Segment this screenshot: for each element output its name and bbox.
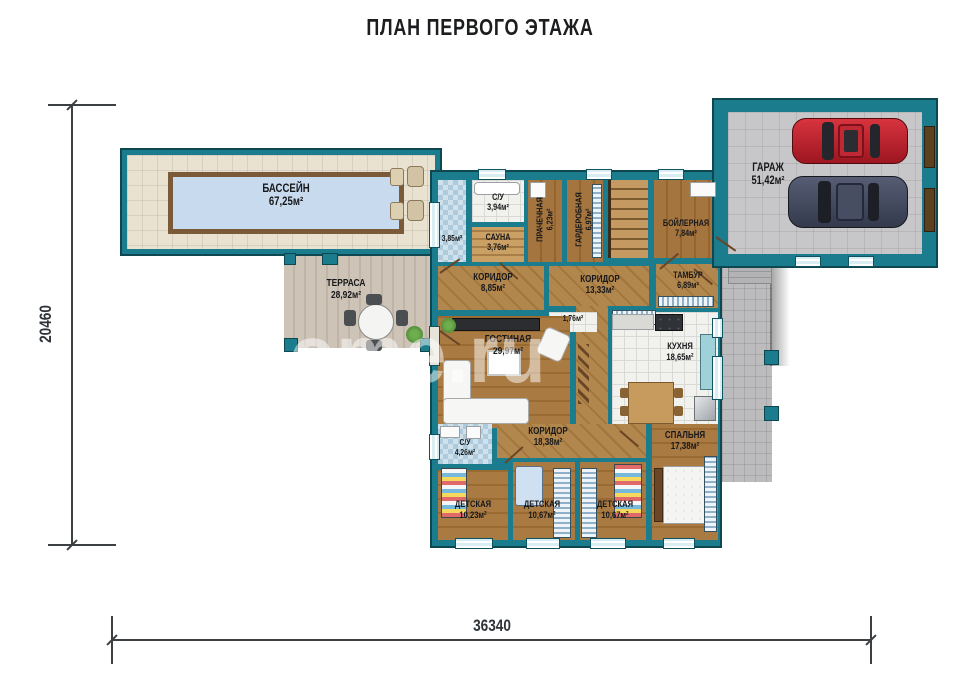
page-title: ПЛАН ПЕРВОГО ЭТАЖА (106, 14, 855, 41)
lounger (407, 166, 424, 187)
room-label-kids3: ДЕТСКАЯ10,67м² (590, 500, 640, 521)
staircase (608, 180, 648, 258)
room-label-kids2: ДЕТСКАЯ10,67м² (516, 500, 567, 521)
garage-door (924, 188, 935, 232)
room-label-terrace: ТЕРРАСА28,92м² (309, 278, 383, 302)
window (663, 538, 695, 549)
shoe-bench (658, 296, 714, 307)
window (526, 538, 560, 549)
bedroom-wardrobe (704, 456, 717, 532)
room-label-wc-top: С/У3,94м² (474, 192, 522, 212)
dimension-line-horizontal (112, 639, 872, 641)
room-label-laundry: ПРАЧЕЧНАЯ6,23м² (535, 186, 554, 254)
floor-plan-canvas: ПЛАН ПЕРВОГО ЭТАЖА БАССЕЙН67,25м² (0, 0, 960, 697)
room-label-wardrobe: ГАРДЕРОБНАЯ6,97м² (574, 186, 593, 254)
watermark: northome.ru (92, 308, 736, 402)
dimension-label-width: 36340 (444, 616, 540, 636)
room-label-kids1: ДЕТСКАЯ10,23м² (447, 500, 500, 521)
dimension-label-height: 20460 (36, 298, 56, 349)
sink (440, 426, 460, 438)
pillar (764, 350, 779, 365)
room-label-garage: ГАРАЖ51,42м² (736, 162, 800, 188)
stair-railing (608, 180, 611, 258)
lounger (390, 168, 404, 186)
chair (674, 406, 683, 416)
room-label-corridor2: КОРИДОР13,33м² (562, 274, 639, 296)
window (455, 538, 493, 549)
window (586, 169, 612, 180)
entry-steps (728, 266, 772, 284)
window (590, 538, 626, 549)
room-label-pool: БАССЕЙН67,25м² (242, 182, 330, 209)
window (848, 256, 874, 267)
car-red-rear-glass (870, 124, 880, 158)
window (478, 169, 506, 180)
room-label-tambour: ТАМБУР6,89м² (664, 270, 712, 290)
car-red-sunroof (844, 130, 858, 152)
window (795, 256, 821, 267)
chair (620, 406, 629, 416)
room-label-corridor1: КОРИДОР8,85м² (457, 272, 529, 294)
terrace-post (322, 253, 338, 265)
room-label-bedroom: СПАЛЬНЯ17,38м² (657, 430, 713, 452)
bed-headboard (654, 468, 663, 522)
car-red-windshield (822, 122, 834, 160)
car-blue-windshield (818, 181, 831, 223)
room-label-wc-bottom: С/У4,26м² (443, 438, 486, 457)
terrace-post (284, 253, 296, 265)
shower-floor (438, 180, 466, 262)
room-label-corridor3: КОРИДОР18,38м² (508, 426, 588, 448)
lounger (407, 200, 424, 221)
room-label-boiler: БОЙЛЕРНАЯ7,84м² (657, 218, 715, 238)
pillar (764, 406, 779, 421)
dimension-arm (48, 544, 116, 546)
dimension-line-vertical (71, 104, 73, 545)
window (658, 169, 684, 180)
lounger (390, 202, 404, 220)
dimension-arm (48, 104, 116, 106)
car-blue-roof (836, 183, 864, 221)
garage-door (924, 126, 935, 168)
car-blue-rear-glass (868, 183, 879, 221)
boiler-unit (690, 182, 716, 197)
window (429, 434, 440, 460)
double-bed (663, 466, 709, 524)
room-label-shower: 3,85м² (434, 234, 469, 244)
room-label-sauna: САУНА3,76м² (476, 232, 521, 252)
